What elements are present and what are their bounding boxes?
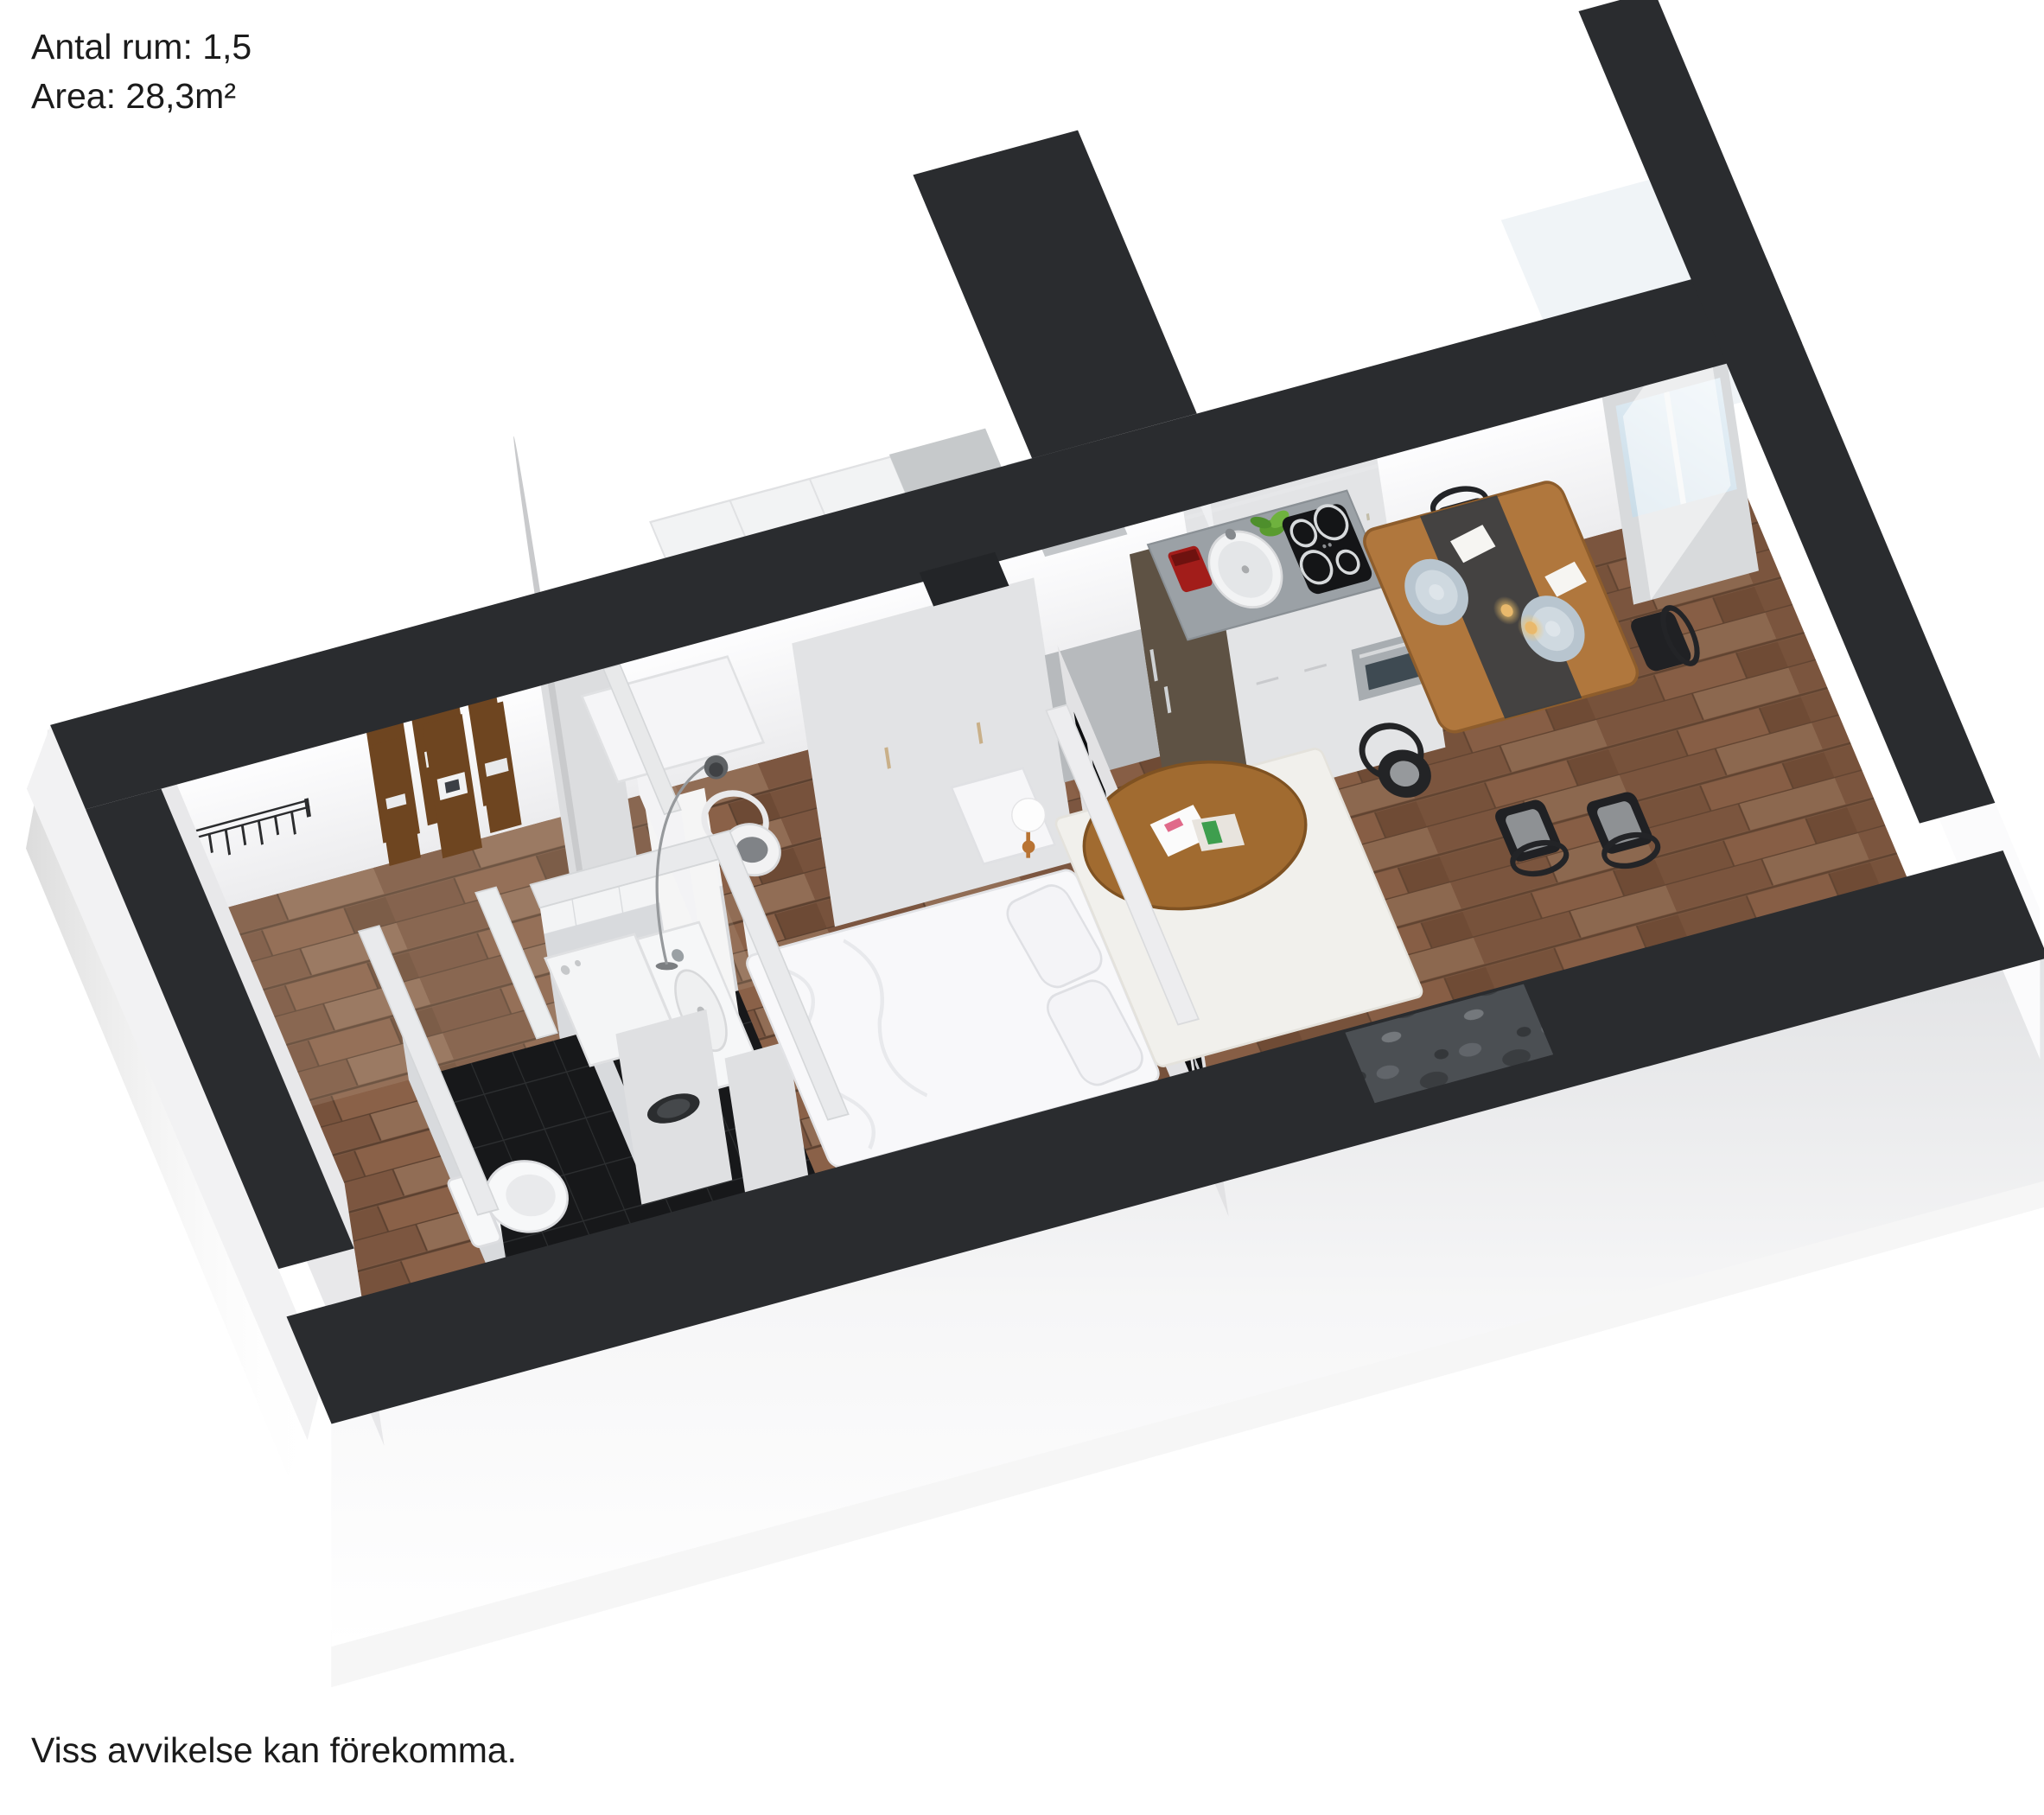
balcony-glass-door (1603, 367, 1746, 525)
hall-picture-frames (372, 727, 515, 821)
lamp-globe (1012, 799, 1046, 832)
floorplan-render (0, 0, 2044, 1815)
floorplan-page: Antal rum: 1,5 Area: 28,3m² (0, 0, 2044, 1815)
vanity-front (735, 1107, 803, 1161)
scene (0, 0, 2044, 1687)
washer-front (627, 1075, 722, 1139)
plan-disclaimer: Viss avvikelse kan förekomma. (31, 1730, 517, 1771)
stairwell-top (913, 131, 1196, 459)
